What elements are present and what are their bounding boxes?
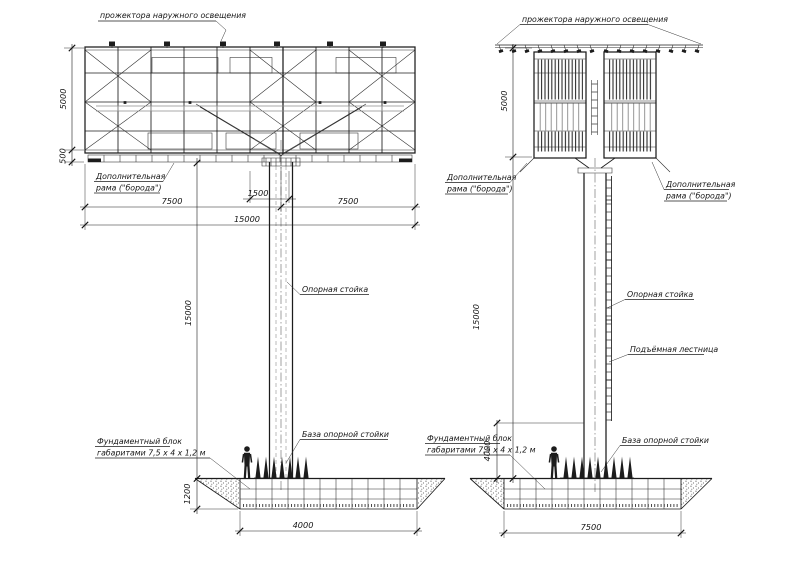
svg-text:Фундаментный блок: Фундаментный блок	[97, 437, 182, 446]
foundation-side	[470, 479, 712, 510]
svg-text:Фундаментный блок: Фундаментный блок	[427, 434, 512, 443]
dim-side-panel-height: 5000	[499, 91, 509, 112]
svg-text:Дополнительная: Дополнительная	[665, 180, 736, 189]
billboard-panels-side	[495, 44, 703, 172]
extra-frame-front	[88, 155, 412, 162]
label-extra-frame-side-right: Дополнительная рама ("борода")	[652, 162, 736, 201]
svg-text:Дополнительная: Дополнительная	[95, 172, 166, 181]
dim-side-column-height: 15000	[471, 304, 481, 330]
svg-text:рама ("борода"): рама ("борода")	[95, 184, 162, 193]
dim-front-half-width-left: 7500	[162, 196, 183, 206]
front-labels: прожектора наружного освещения Дополните…	[94, 11, 389, 489]
dim-front-extra-frame-height: 500	[58, 148, 68, 164]
dim-front-foundation-depth: 1200	[182, 484, 192, 505]
dim-front-panel-height: 5000	[58, 89, 68, 110]
label-floodlights-front: прожектора наружного освещения	[98, 11, 246, 41]
svg-text:Подъёмная лестница: Подъёмная лестница	[630, 345, 718, 354]
foundation-front	[195, 479, 445, 510]
label-extra-frame-front: Дополнительная рама ("борода")	[94, 163, 174, 193]
dim-front-column-offset: 1500	[248, 188, 269, 198]
svg-text:прожектора наружного освещения: прожектора наружного освещения	[522, 15, 668, 24]
billboard-truss-front	[85, 42, 415, 163]
label-column-base-front: База опорной стойки	[286, 430, 389, 463]
climbing-ladder	[606, 176, 612, 421]
label-column-base-side: База опорной стойки	[601, 436, 709, 472]
svg-text:рама ("борода"): рама ("борода")	[446, 185, 513, 194]
person-figure-front	[242, 446, 251, 478]
dim-front-total-width: 15000	[234, 214, 260, 224]
column-base-front	[254, 457, 309, 479]
column-base-side	[560, 457, 634, 479]
svg-text:База опорной стойки: База опорной стойки	[622, 436, 709, 445]
svg-text:габаритами 7,5 х 4 х 1,2 м: габаритами 7,5 х 4 х 1,2 м	[427, 446, 536, 455]
billboard-structure-drawing: 5000 500 1500 7500 7500 15000 15000 1200	[0, 0, 800, 566]
svg-text:Опорная стойка: Опорная стойка	[302, 285, 368, 294]
side-view: 5000 15000 4000 7500 прожектора наружног…	[425, 15, 736, 538]
svg-text:рама ("борода"): рама ("борода")	[665, 192, 732, 201]
dim-front-half-width-right: 7500	[338, 196, 359, 206]
label-support-column-side: Опорная стойка	[607, 290, 694, 308]
label-extra-frame-side-left: Дополнительная рама ("борода")	[445, 163, 527, 194]
svg-text:Дополнительная: Дополнительная	[446, 173, 517, 182]
svg-text:База опорной стойки: База опорной стойки	[302, 430, 389, 439]
svg-text:прожектора наружного освещения: прожектора наружного освещения	[100, 11, 246, 20]
dim-side-foundation-length: 7500	[581, 522, 602, 532]
technical-drawing-page: 5000 500 1500 7500 7500 15000 15000 1200	[0, 0, 800, 566]
label-floodlights-side: прожектора наружного освещения	[497, 15, 701, 44]
front-view: 5000 500 1500 7500 7500 15000 15000 1200	[58, 11, 446, 536]
floodlights-side	[497, 44, 701, 53]
svg-text:Опорная стойка: Опорная стойка	[627, 290, 693, 299]
dim-front-column-height: 15000	[183, 300, 193, 326]
label-ladder: Подъёмная лестница	[609, 345, 718, 362]
person-figure-side	[549, 446, 558, 478]
dim-front-foundation-width: 4000	[293, 520, 314, 530]
svg-text:габаритами 7,5 х 4 х 1,2 м: габаритами 7,5 х 4 х 1,2 м	[97, 449, 206, 458]
label-support-column-front: Опорная стойка	[287, 282, 369, 295]
